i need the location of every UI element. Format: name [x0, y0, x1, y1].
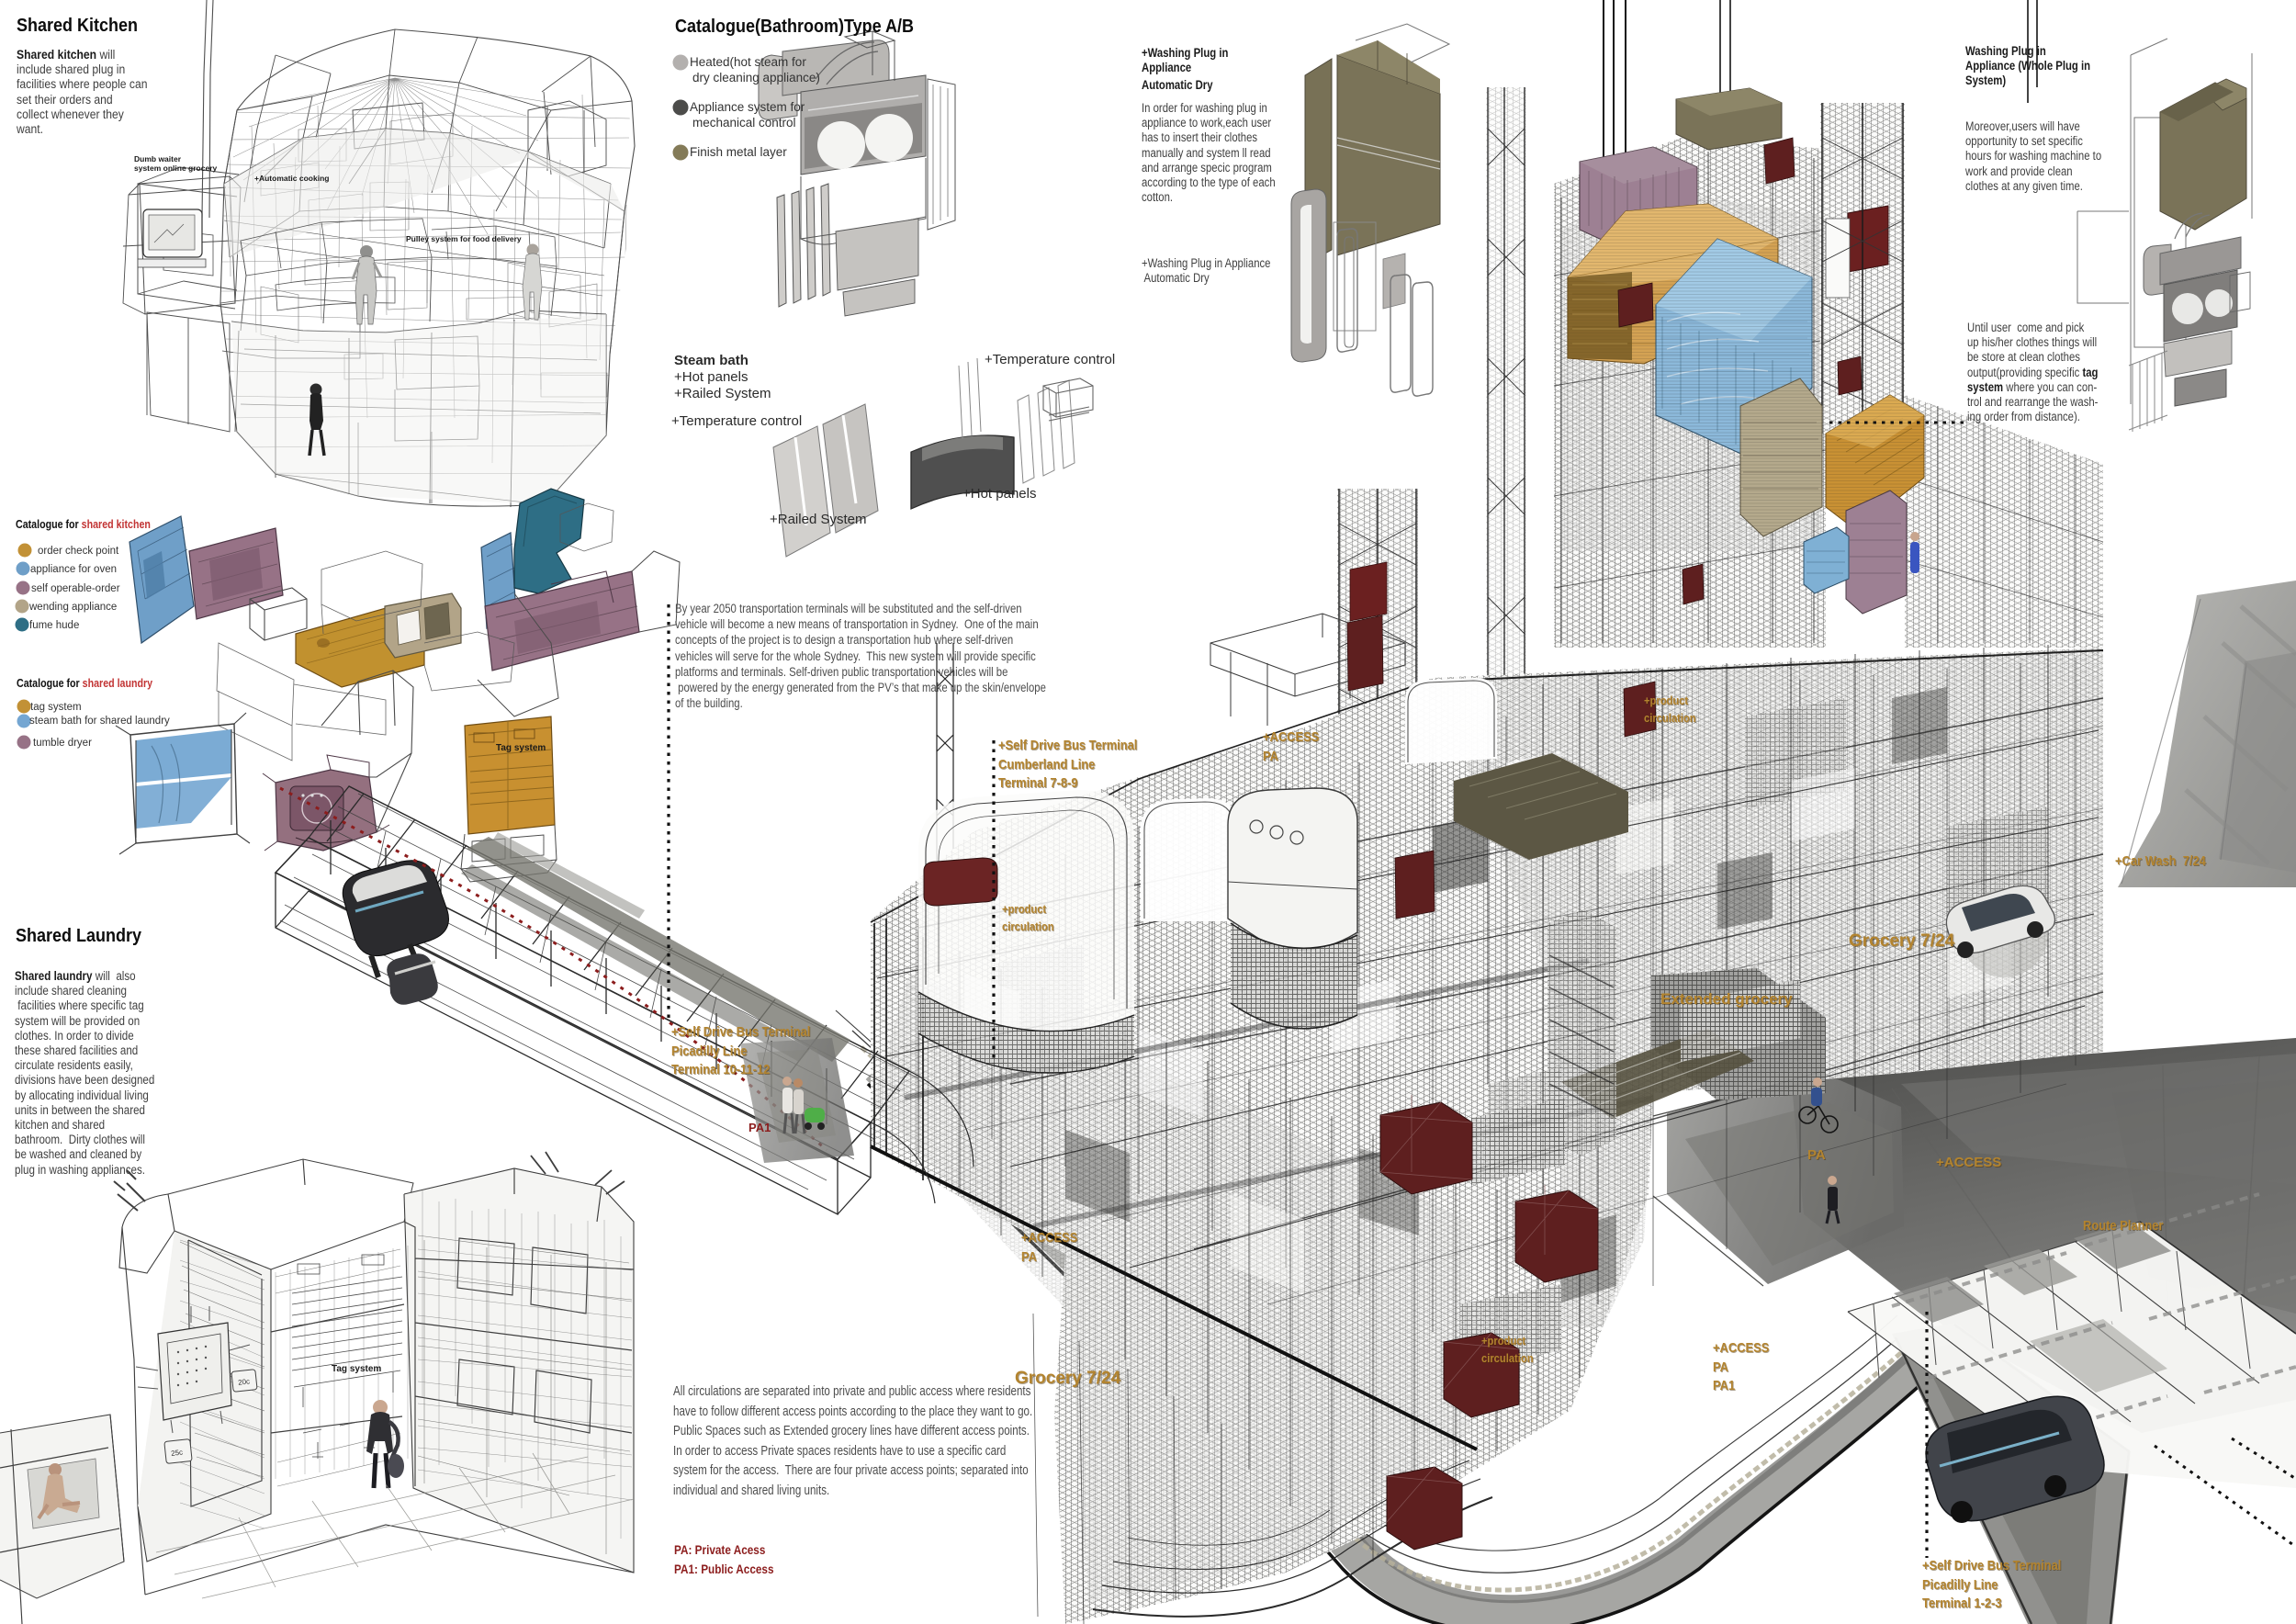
svg-text:25c: 25c [171, 1449, 184, 1458]
svg-text:dry cleaning appliance): dry cleaning appliance) [692, 71, 820, 85]
svg-text:Heated(hot steam for: Heated(hot steam for [690, 55, 806, 69]
svg-text:order check point: order check point [38, 546, 119, 557]
svg-text:fume hude: fume hude [29, 620, 79, 631]
svg-text:appliance for oven: appliance for oven [30, 564, 117, 575]
svg-text:mechanical control: mechanical control [692, 116, 796, 130]
svg-text:tag system: tag system [30, 702, 82, 713]
svg-text:wending appliance: wending appliance [28, 602, 117, 613]
svg-text:self operable-order: self operable-order [31, 583, 120, 594]
svg-text:Appliance system for: Appliance system for [690, 100, 805, 114]
svg-text:tumble dryer: tumble dryer [33, 738, 92, 749]
svg-text:Finish metal layer: Finish metal layer [690, 145, 787, 159]
svg-text:20c: 20c [238, 1377, 251, 1386]
svg-text:steam bath for shared laundry: steam bath for shared laundry [29, 716, 170, 727]
